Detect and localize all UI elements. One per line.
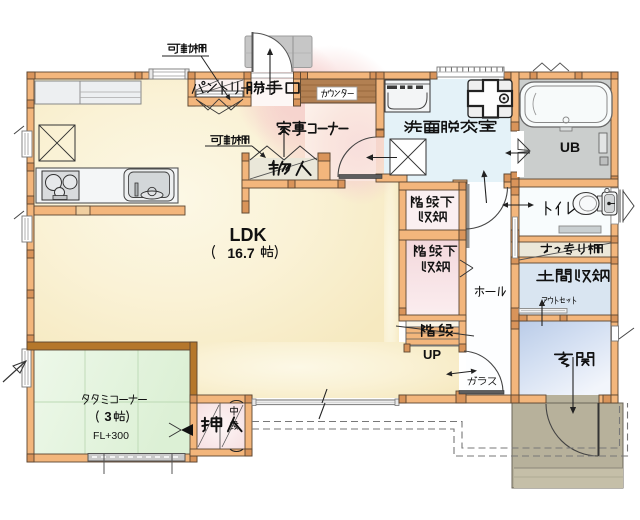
svg-text:LDK: LDK	[230, 225, 267, 245]
svg-text:UB: UB	[560, 139, 580, 155]
svg-text:UP: UP	[423, 347, 441, 362]
svg-text:FL+300: FL+300	[93, 430, 129, 442]
svg-text:3: 3	[104, 409, 111, 424]
svg-text:16.7: 16.7	[227, 245, 254, 261]
